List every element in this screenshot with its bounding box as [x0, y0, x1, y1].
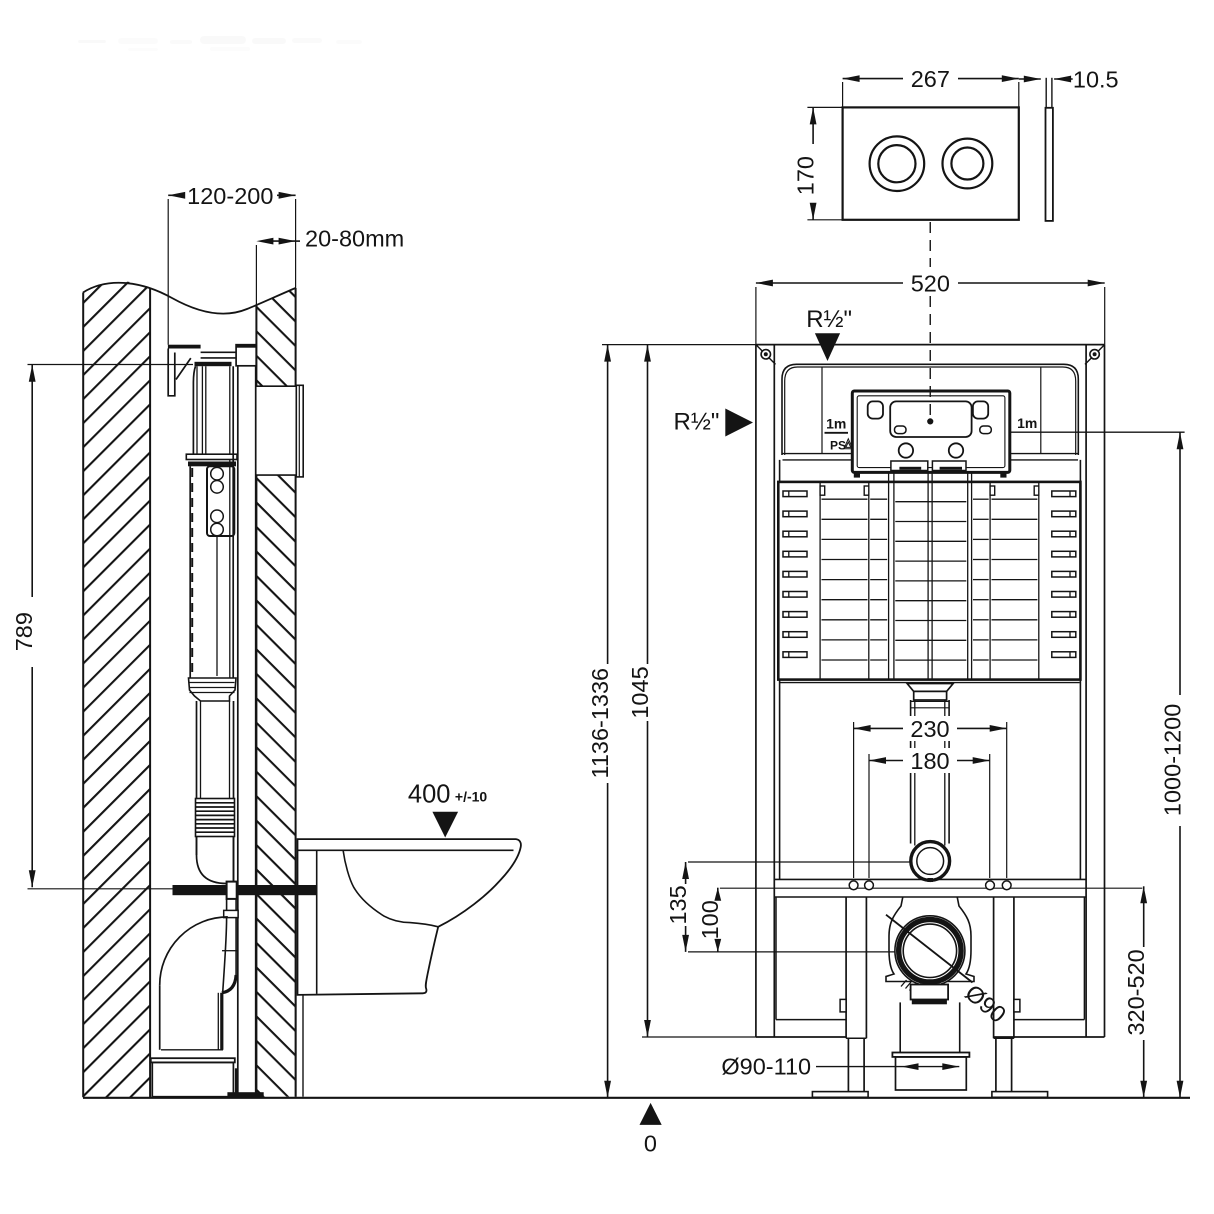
svg-text:180: 180	[910, 748, 949, 774]
svg-text:+/-10: +/-10	[455, 789, 488, 805]
svg-text:R½": R½"	[806, 306, 852, 333]
svg-text:10.5: 10.5	[1073, 67, 1119, 93]
svg-text:170: 170	[792, 156, 818, 195]
svg-text:20-80mm: 20-80mm	[305, 226, 404, 252]
svg-text:Ø90-110: Ø90-110	[721, 1053, 811, 1079]
svg-text:320-520: 320-520	[1123, 949, 1149, 1035]
svg-text:PS: PS	[830, 439, 846, 453]
svg-text:1045: 1045	[627, 666, 653, 718]
svg-text:230: 230	[910, 716, 949, 742]
svg-text:520: 520	[911, 271, 950, 297]
svg-text:1000-1200: 1000-1200	[1159, 704, 1185, 816]
svg-text:267: 267	[911, 66, 950, 92]
svg-text:789: 789	[11, 612, 37, 651]
svg-text:R½": R½"	[674, 408, 720, 435]
svg-text:1136-1336: 1136-1336	[587, 668, 613, 779]
svg-text:0: 0	[644, 1131, 657, 1157]
svg-text:135: 135	[665, 885, 691, 924]
svg-text:100: 100	[697, 900, 723, 939]
svg-text:120-200: 120-200	[187, 183, 273, 209]
svg-text:1m: 1m	[826, 416, 846, 432]
svg-text:400: 400	[408, 781, 451, 809]
svg-text:1m: 1m	[1017, 415, 1037, 431]
